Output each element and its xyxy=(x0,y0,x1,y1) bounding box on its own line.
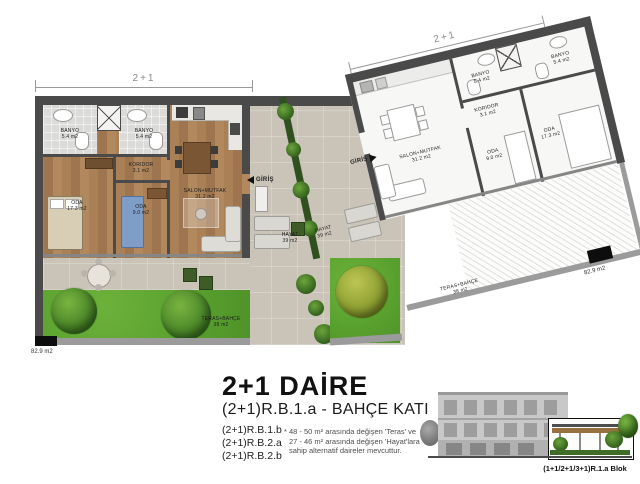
chair xyxy=(380,114,391,126)
page-title: 2+1 DAİRE xyxy=(222,372,429,400)
wardrobe xyxy=(85,158,113,169)
sink xyxy=(193,107,205,120)
entrance-label: GİRİŞ xyxy=(256,177,274,183)
ground-line xyxy=(428,456,632,458)
title-block: 2+1 DAİRE (2+1)R.B.1.a - BAHÇE KATI xyxy=(222,372,429,419)
courtyard-top-wall xyxy=(245,96,352,106)
garden-bottom-wall xyxy=(35,338,250,345)
chair xyxy=(175,146,182,154)
footnote: * 48 - 50 m² arasında değişen 'Teras' ve… xyxy=(284,427,420,456)
tree xyxy=(161,290,211,340)
variant-item: (2+1)R.B.1.b xyxy=(222,424,282,437)
internal-wall xyxy=(167,105,170,160)
room-label-teras-left: TERAS+BAHÇE38 m2 xyxy=(201,316,240,328)
tree xyxy=(336,266,388,318)
floor-plan-sheet: HAYAT39 m2 HAYAT39 m2 xyxy=(0,0,640,484)
entrance-arrow-icon xyxy=(369,153,378,162)
floor-plan: HAYAT39 m2 HAYAT39 m2 xyxy=(0,0,640,365)
garden-chair xyxy=(95,258,102,265)
fridge xyxy=(230,123,240,135)
entrance-left: GİRİŞ xyxy=(247,176,274,184)
room-label-salon: SALON+MUTFAK31.2 m2 xyxy=(184,188,227,200)
patio xyxy=(43,258,250,290)
room-label-banyo-1: BANYO5.4 m2 xyxy=(61,128,80,140)
bush xyxy=(308,300,324,316)
washbasin xyxy=(127,109,147,122)
dimension-line-left: 2+1 xyxy=(35,70,253,88)
page-subtitle: (2+1)R.B.1.a - BAHÇE KATI xyxy=(222,401,429,419)
chair xyxy=(175,160,182,168)
footnote-line: * 48 - 50 m² arasında değişen 'Teras' ve xyxy=(284,427,420,437)
block-caption: (1+1/2+1/3+1)R.1.a Blok xyxy=(530,464,640,473)
garden-chair xyxy=(109,270,116,277)
internal-wall xyxy=(113,154,116,258)
internal-wall xyxy=(167,180,170,258)
garden-left-wall xyxy=(35,258,43,345)
bush xyxy=(553,437,568,451)
left-garden: TERAS+BAHÇE38 m2 xyxy=(35,258,250,345)
garden-chair xyxy=(95,284,102,291)
variant-item: (2+1)R.B.2.a xyxy=(222,437,282,450)
variant-item: (2+1)R.B.2.b xyxy=(222,450,282,463)
coffee-table xyxy=(195,208,207,220)
chair xyxy=(211,160,218,168)
footnote-line: 27 - 46 m² arasında değişen 'Hayat'lara xyxy=(284,437,420,447)
room-label-oda-big: ODA17.3 m2 xyxy=(67,200,86,212)
pillow xyxy=(50,199,64,209)
room-label-oda-small: ODA9.0 m2 xyxy=(133,204,150,216)
planter-pot xyxy=(255,186,268,212)
desk xyxy=(147,188,167,199)
room-label-banyo-2: BANYO5.4 m2 xyxy=(135,128,154,140)
internal-wall xyxy=(113,180,170,183)
left-apartment-glass-wall xyxy=(43,254,242,257)
room-label-hayat-left: HAYAT39 m2 xyxy=(282,232,299,244)
variant-list: (2+1)R.B.1.b (2+1)R.B.2.a (2+1)R.B.2.b xyxy=(222,424,282,463)
footnote-line: sahip alternatif daireler mevcuttur. xyxy=(284,446,420,456)
internal-wall xyxy=(43,154,169,157)
washbasin xyxy=(53,109,73,122)
tree xyxy=(51,288,97,334)
left-apartment-left-wall xyxy=(35,96,43,258)
stove xyxy=(176,107,188,118)
shaft xyxy=(97,105,121,131)
pot xyxy=(199,276,213,290)
tree xyxy=(618,414,638,438)
bush xyxy=(296,274,316,294)
lounger xyxy=(254,216,290,231)
entrance-arrow-icon xyxy=(247,176,254,184)
left-apartment-right-wall-lower xyxy=(242,194,250,258)
dining-table xyxy=(183,142,211,174)
pot xyxy=(183,268,197,282)
right-lawn xyxy=(330,258,400,343)
chair xyxy=(383,128,394,140)
block-elevation: (1+1/2+1/3+1)R.1.a Blok xyxy=(420,384,638,480)
total-area-left: 82.9 m2 xyxy=(31,349,53,355)
left-apartment-right-wall-upper xyxy=(242,96,250,174)
corner-marker xyxy=(35,336,57,346)
left-apartment-top-wall xyxy=(35,96,250,105)
tree xyxy=(420,420,440,446)
left-apartment: BANYO5.4 m2 BANYO5.4 m2 KORIDOR3.1 m2 OD… xyxy=(35,96,250,258)
garden-chair xyxy=(81,270,88,277)
dimension-label-left: 2+1 xyxy=(35,73,253,84)
room-label-koridor: KORIDOR3.1 m2 xyxy=(129,162,154,174)
sofa xyxy=(225,206,241,242)
chair xyxy=(211,146,218,154)
